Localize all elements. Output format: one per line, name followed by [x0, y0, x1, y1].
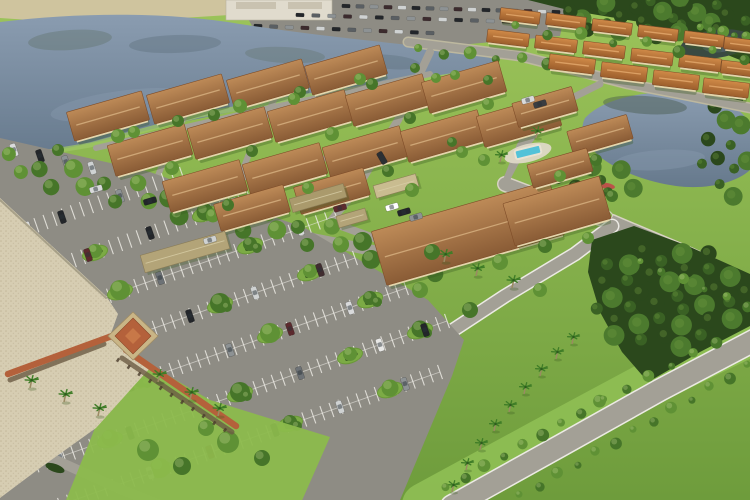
perimeter-shrub-row-tree [701, 286, 707, 292]
north-road-cypress-row-tree [464, 46, 477, 59]
lawn-trees-tree [198, 420, 214, 436]
drive-tree-row-south-tree [108, 195, 122, 209]
boulevard-hedge-east-tree [630, 426, 637, 433]
boulevard-hedge-east-tree [551, 467, 563, 479]
forest-tree [591, 303, 603, 315]
community-trees-tree [450, 70, 460, 80]
drive-tree-row-north-tree [353, 232, 372, 251]
forest-tree [643, 266, 659, 282]
townhome-tree-row-tree [575, 27, 588, 40]
community-trees-tree [538, 239, 552, 253]
median-hedge-row-2-tree [622, 385, 631, 394]
forest-tree [700, 245, 716, 261]
median-hedge-row-2-tree [711, 337, 723, 349]
community-trees-tree [483, 75, 493, 85]
parking-island-tree [382, 380, 399, 397]
boulevard-hedge-east-tree [516, 491, 523, 498]
forest-tree [621, 274, 633, 286]
median-hedge-row-tree [461, 473, 471, 483]
forest-tree [720, 7, 734, 21]
community-trees-tree [482, 98, 494, 110]
forest-tree [612, 160, 631, 179]
townhome-tree-row-tree [542, 30, 552, 40]
community-trees-tree [246, 145, 258, 157]
drive-tree-row-north-tree [130, 175, 146, 191]
boulevard-hedge-east-tree [590, 446, 599, 455]
forest-tree [672, 243, 693, 264]
parking-island-tree [252, 243, 262, 253]
forest-tree [708, 281, 724, 297]
forest-tree [701, 311, 717, 327]
forest-tree [657, 328, 673, 344]
parking-island-tree [372, 297, 382, 307]
community-trees-tree [404, 112, 416, 124]
forest-tree [624, 179, 643, 198]
boulevard-hedge-east-tree [665, 402, 677, 414]
forest-tree [697, 159, 707, 169]
community-trees-tree [533, 283, 547, 297]
drive-tree-row-south-tree [300, 238, 314, 252]
boulevard-hedge-east-tree [649, 417, 658, 426]
community-trees-tree [478, 154, 490, 166]
forest-tree [648, 295, 664, 311]
north-road-cypress-row-tree [517, 52, 527, 62]
median-hedge-row-tree [442, 483, 450, 491]
forest-tree [671, 315, 692, 336]
forest-tree [671, 290, 683, 302]
lawn-trees-tree [217, 431, 239, 453]
community-trees-tree [128, 126, 140, 138]
community-trees-tree [288, 93, 300, 105]
parking-island-tree [303, 264, 317, 278]
community-trees-tree [208, 109, 220, 121]
townhome-tree-row-tree [673, 45, 686, 58]
forest-tree [703, 263, 715, 275]
townhome-tree-row-tree [609, 39, 617, 47]
median-hedge-row-tree [500, 453, 508, 461]
drive-tree-row-south-tree [333, 236, 349, 252]
forest-tree [596, 274, 612, 290]
community-trees-tree [52, 144, 64, 156]
boulevard-hedge-east-tree [688, 397, 695, 404]
median-hedge-row-2-tree [688, 348, 697, 357]
drive-tree-row-north-tree [2, 147, 16, 161]
community-trees-tree [606, 190, 618, 202]
community-trees-tree [222, 199, 234, 211]
boulevard-hedge-east-tree [574, 462, 581, 469]
drive-tree-row-north-tree [31, 161, 47, 177]
parking-island-tree [260, 323, 280, 343]
perimeter-shrub-row-tree [657, 268, 665, 276]
community-trees-tree [382, 165, 394, 177]
forest-tree [712, 0, 722, 10]
forest-tree [635, 334, 647, 346]
community-trees-tree [325, 127, 339, 141]
forest-tree [720, 266, 741, 287]
townhome-tree-row-tree [642, 36, 652, 46]
forest-tree [629, 0, 643, 14]
aerial-site-plan-rendering [0, 0, 750, 500]
community-trees-tree [456, 146, 468, 158]
townhome-tree-row-tree [709, 46, 717, 54]
community-trees-tree [405, 183, 419, 197]
forest-tree [711, 151, 725, 165]
boulevard-hedge-east-tree [724, 373, 736, 385]
perimeter-shrub-row-tree [678, 273, 689, 284]
median-hedge-row-2-tree [600, 396, 607, 403]
forest-tree [632, 284, 648, 300]
forest-tree [628, 314, 649, 335]
median-hedge-row-tree [557, 419, 565, 427]
community-trees-tree [582, 232, 594, 244]
forest-tree [701, 132, 715, 146]
median-hedge-row-tree [478, 459, 491, 472]
perimeter-shrub-row-tree [723, 292, 731, 300]
parking-island-tree [110, 280, 130, 300]
forest-tree [715, 179, 725, 189]
forest-tree [653, 312, 665, 324]
forest-tree [624, 301, 636, 313]
boulevard-hedge-east-tree [535, 482, 544, 491]
forest-tree [726, 140, 736, 150]
distant-roof-unit [236, 2, 276, 9]
distant-roof-unit [288, 2, 322, 9]
forest-tree [724, 187, 743, 206]
community-trees-tree [462, 302, 478, 318]
community-trees-tree [590, 154, 602, 166]
median-hedge-row-tree [576, 408, 586, 418]
forest-tree [604, 325, 625, 346]
pond-tree-row-tree [697, 24, 704, 31]
townhome-tree-row-tree [511, 21, 519, 29]
community-trees-tree [165, 161, 179, 175]
community-trees-tree [172, 115, 184, 127]
lawn-trees-tree [173, 457, 191, 475]
parking-island-tree [343, 347, 357, 361]
median-hedge-row-2-tree [668, 363, 675, 370]
median-hedge-row-tree [517, 439, 527, 449]
community-trees-tree [111, 129, 125, 143]
community-trees-tree [492, 254, 508, 270]
community-trees-tree [447, 137, 457, 147]
lawn-trees-tree [137, 439, 159, 461]
drive-tree-row-north-tree [64, 159, 83, 178]
parking-island-tree [242, 391, 252, 401]
forest-tree [601, 258, 613, 270]
forest-tree [729, 164, 739, 174]
drive-tree-row-south-tree [43, 179, 59, 195]
community-trees-tree [354, 73, 366, 85]
forest-tree [670, 336, 691, 357]
community-trees-tree [302, 182, 314, 194]
boulevard-hedge-east-tree [704, 381, 713, 390]
forest-tree [677, 303, 689, 315]
lawn-trees-tree [254, 450, 270, 466]
community-trees-tree [412, 282, 428, 298]
drive-tree-row-south-tree [267, 221, 286, 240]
forest-tree [619, 254, 640, 275]
forest-tree [636, 243, 652, 259]
community-trees-tree [366, 78, 378, 90]
forest-tree [722, 308, 743, 329]
north-road-cypress-row-tree [414, 44, 422, 52]
drive-tree-row-north-tree [291, 220, 305, 234]
boulevard-hedge-east-tree [610, 438, 622, 450]
community-trees-tree [424, 244, 440, 260]
perimeter-shrub-row-tree [637, 258, 643, 264]
community-trees-tree [554, 170, 566, 182]
drive-tree-row-south-tree [14, 165, 28, 179]
community-trees-tree [431, 73, 441, 83]
townhome-tree-row-tree [739, 55, 749, 65]
forest-tree [732, 116, 750, 135]
community-trees-tree [410, 63, 420, 73]
forest-tree [695, 329, 707, 341]
median-hedge-row-2-tree [642, 370, 654, 382]
parking-island-tree [222, 302, 232, 312]
community-trees-tree [233, 99, 247, 113]
rendering-canvas [0, 0, 750, 500]
forest-tree [655, 255, 667, 267]
median-hedge-row-tree [536, 429, 549, 442]
north-road-cypress-row-tree [439, 49, 449, 59]
forest-tree [653, 2, 672, 21]
